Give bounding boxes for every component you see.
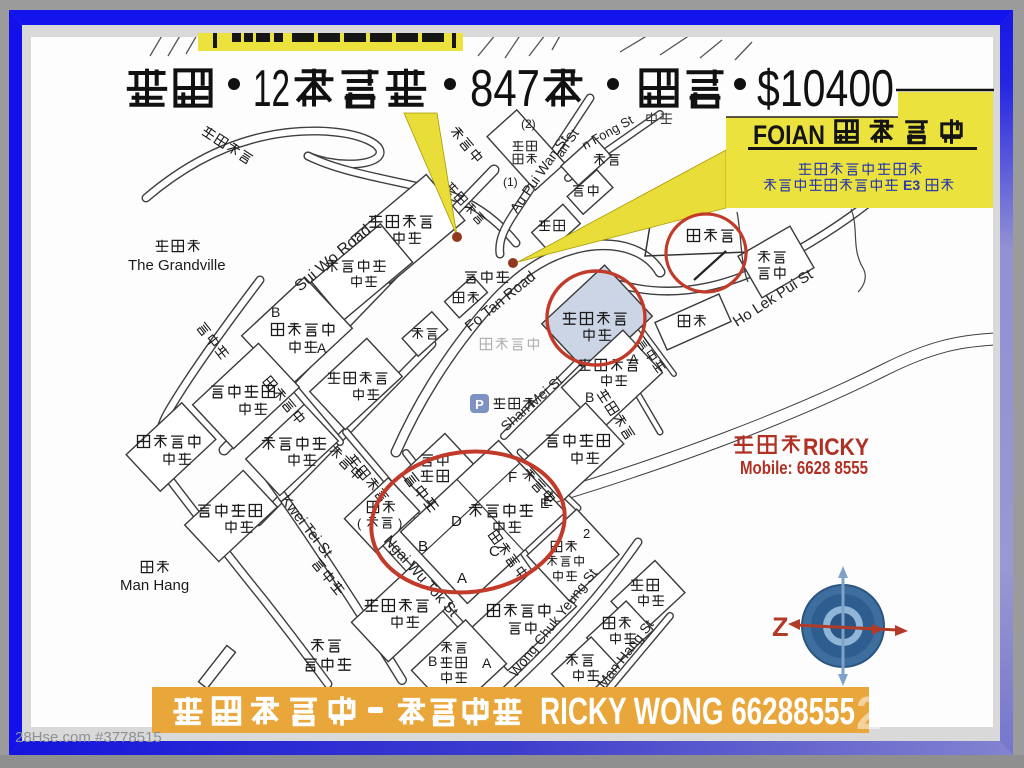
svg-text:12: 12 [253,60,290,118]
svg-text:The Grandville: The Grandville [128,257,226,274]
svg-text:E3: E3 [903,177,920,193]
svg-text:(: ( [357,516,362,531]
svg-text:(1): (1) [503,175,518,189]
svg-text:B: B [418,538,428,555]
svg-text:B: B [428,653,437,669]
svg-text:28Hse.com #3778515: 28Hse.com #3778515 [15,729,162,746]
svg-text:2: 2 [856,687,882,739]
svg-text:F: F [508,469,517,486]
svg-text:2: 2 [583,526,590,541]
svg-text:): ) [398,516,402,531]
svg-text:A: A [482,655,492,671]
svg-text:$10400: $10400 [757,60,894,118]
svg-text:P: P [475,397,484,412]
svg-text:Mobile: 6628 8555: Mobile: 6628 8555 [740,458,868,478]
svg-text:B: B [585,389,594,405]
svg-text:RICKY: RICKY [803,434,869,461]
svg-text:FOIAN: FOIAN [753,120,825,150]
svg-text:A: A [457,570,467,587]
svg-text:847: 847 [470,60,540,118]
svg-text:Z: Z [772,612,789,642]
svg-text:B: B [271,304,280,320]
svg-text:(2): (2) [521,117,536,131]
svg-text:A: A [317,340,327,356]
svg-text:RICKY WONG 66288555: RICKY WONG 66288555 [540,691,855,733]
svg-text:Man Hang: Man Hang [120,577,189,594]
svg-text:D: D [451,513,462,530]
svg-text:C: C [489,543,500,560]
